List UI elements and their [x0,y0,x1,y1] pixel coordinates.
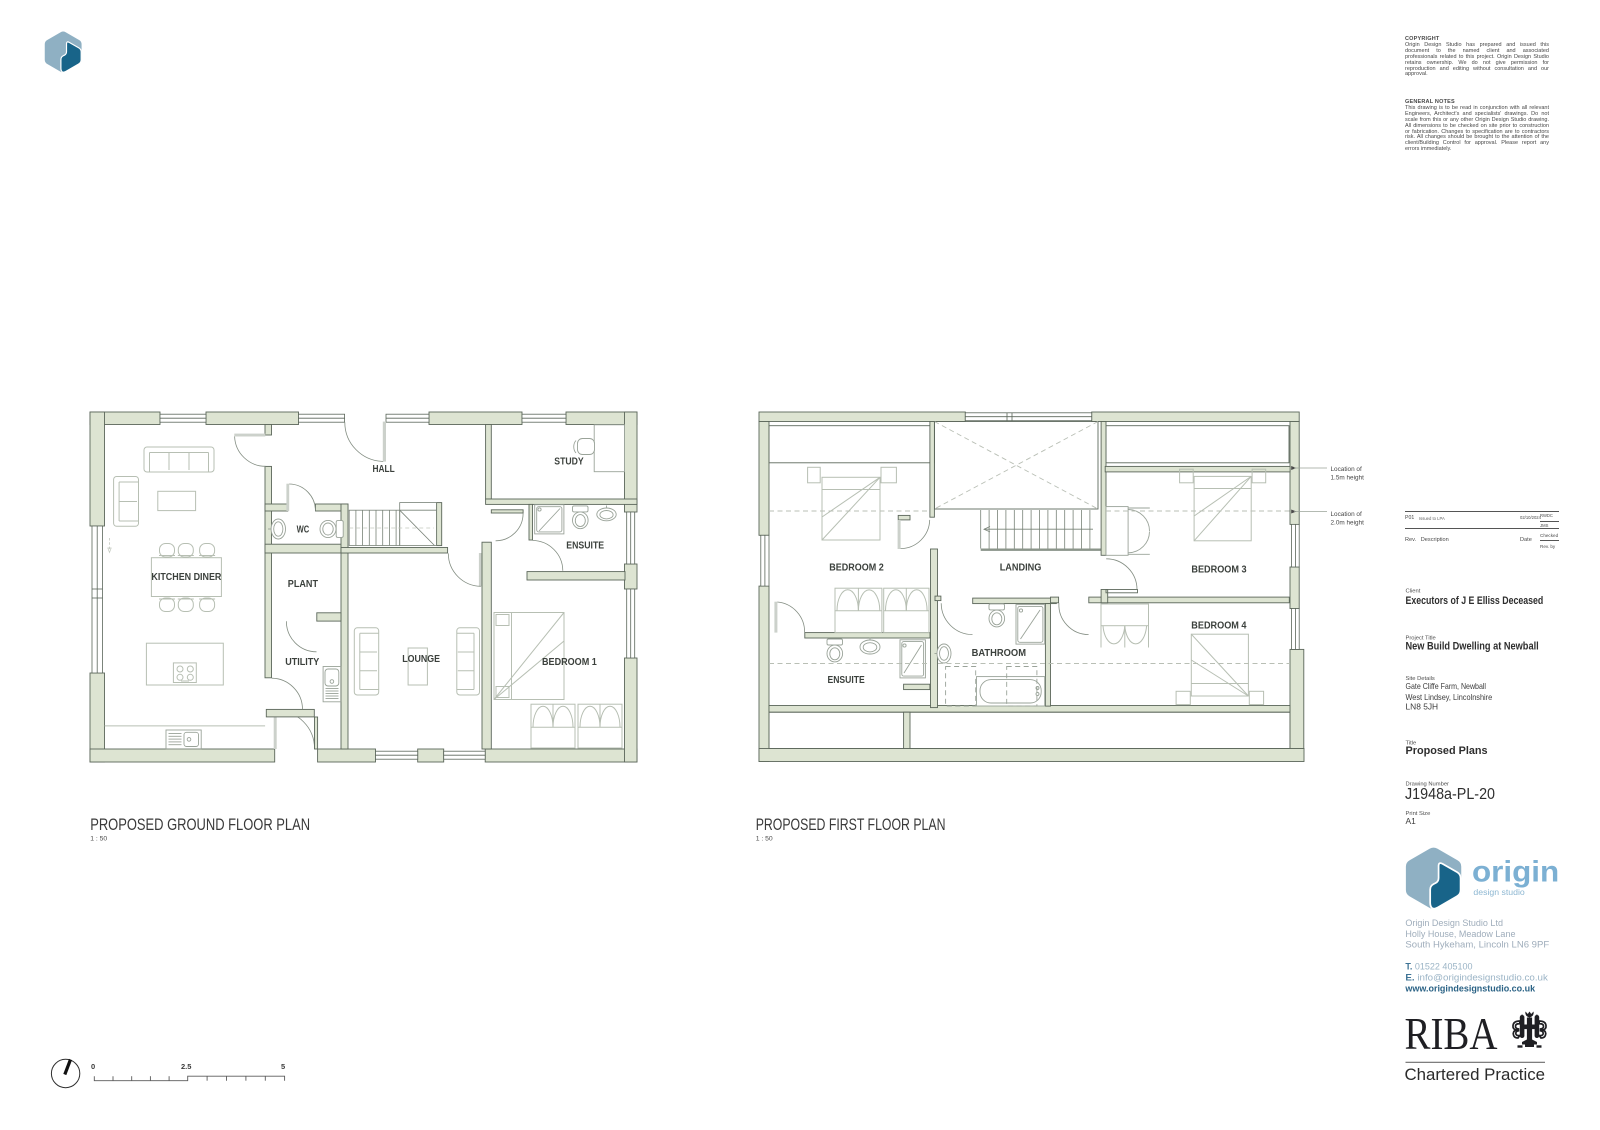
svg-text:1 : 50: 1 : 50 [90,836,107,843]
svg-text:A1: A1 [1406,816,1417,826]
svg-text:Chartered Practice: Chartered Practice [1405,1065,1546,1084]
svg-text:Proposed Plans: Proposed Plans [1406,745,1488,757]
svg-text:STUDY: STUDY [554,457,583,468]
svg-text:KITCHEN DINER: KITCHEN DINER [151,572,222,583]
svg-text:RIBA: RIBA [1405,1008,1498,1059]
svg-text:Executors of J E Elliss Deceas: Executors of J E Elliss Deceased [1406,595,1544,607]
svg-text:New Build Dwelling at Newball: New Build Dwelling at Newball [1406,641,1539,653]
svg-text:design studio: design studio [1473,887,1525,897]
svg-text:BEDROOM 4: BEDROOM 4 [1191,620,1246,631]
svg-text:E. info@origindesignstudio.co.: E. info@origindesignstudio.co.uk [1405,973,1548,983]
svg-text:ENSUITE: ENSUITE [566,540,604,551]
svg-text:Client: Client [1406,589,1421,595]
svg-text:BEDROOM 2: BEDROOM 2 [829,563,884,574]
svg-text:LANDING: LANDING [1000,563,1042,574]
svg-text:LN8 5JH: LN8 5JH [1406,701,1439,711]
svg-text:origin: origin [1472,856,1559,889]
svg-text:UTILITY: UTILITY [285,657,319,668]
svg-text:0: 0 [91,1062,95,1071]
svg-text:1.5m height: 1.5m height [1331,474,1365,481]
svg-text:BEDROOM 1: BEDROOM 1 [542,657,597,668]
svg-text:T. 01522 405100: T. 01522 405100 [1405,962,1472,972]
svg-text:PROPOSED FIRST FLOOR PLAN: PROPOSED FIRST FLOOR PLAN [756,816,946,834]
svg-text:PLANT: PLANT [288,579,319,590]
svg-text:www.origindesignstudio.co.uk: www.origindesignstudio.co.uk [1404,983,1536,993]
svg-text:5: 5 [281,1062,285,1071]
svg-text:Location of: Location of [1331,511,1362,518]
svg-text:1 : 50: 1 : 50 [756,836,773,843]
svg-text:South Hykeham, Lincoln LN6 9PF: South Hykeham, Lincoln LN6 9PF [1405,940,1549,950]
svg-text:Location of: Location of [1331,466,1362,473]
svg-text:Holly House, Meadow Lane: Holly House, Meadow Lane [1405,929,1515,939]
svg-text:2.0m height: 2.0m height [1331,519,1365,526]
svg-text:WC: WC [297,524,310,535]
svg-text:LOUNGE: LOUNGE [402,654,440,665]
svg-text:J1948a-PL-20: J1948a-PL-20 [1405,786,1495,803]
svg-text:HALL: HALL [373,464,395,475]
svg-text:BATHROOM: BATHROOM [972,648,1026,659]
svg-text:Gate Cliffe Farm, Newball: Gate Cliffe Farm, Newball [1406,681,1487,691]
svg-text:Origin Design Studio Ltd: Origin Design Studio Ltd [1405,918,1503,928]
svg-text:BEDROOM 3: BEDROOM 3 [1191,564,1246,575]
svg-text:ENSUITE: ENSUITE [828,675,865,686]
svg-text:2.5: 2.5 [181,1062,191,1071]
svg-text:PROPOSED GROUND FLOOR PLAN: PROPOSED GROUND FLOOR PLAN [90,816,310,834]
